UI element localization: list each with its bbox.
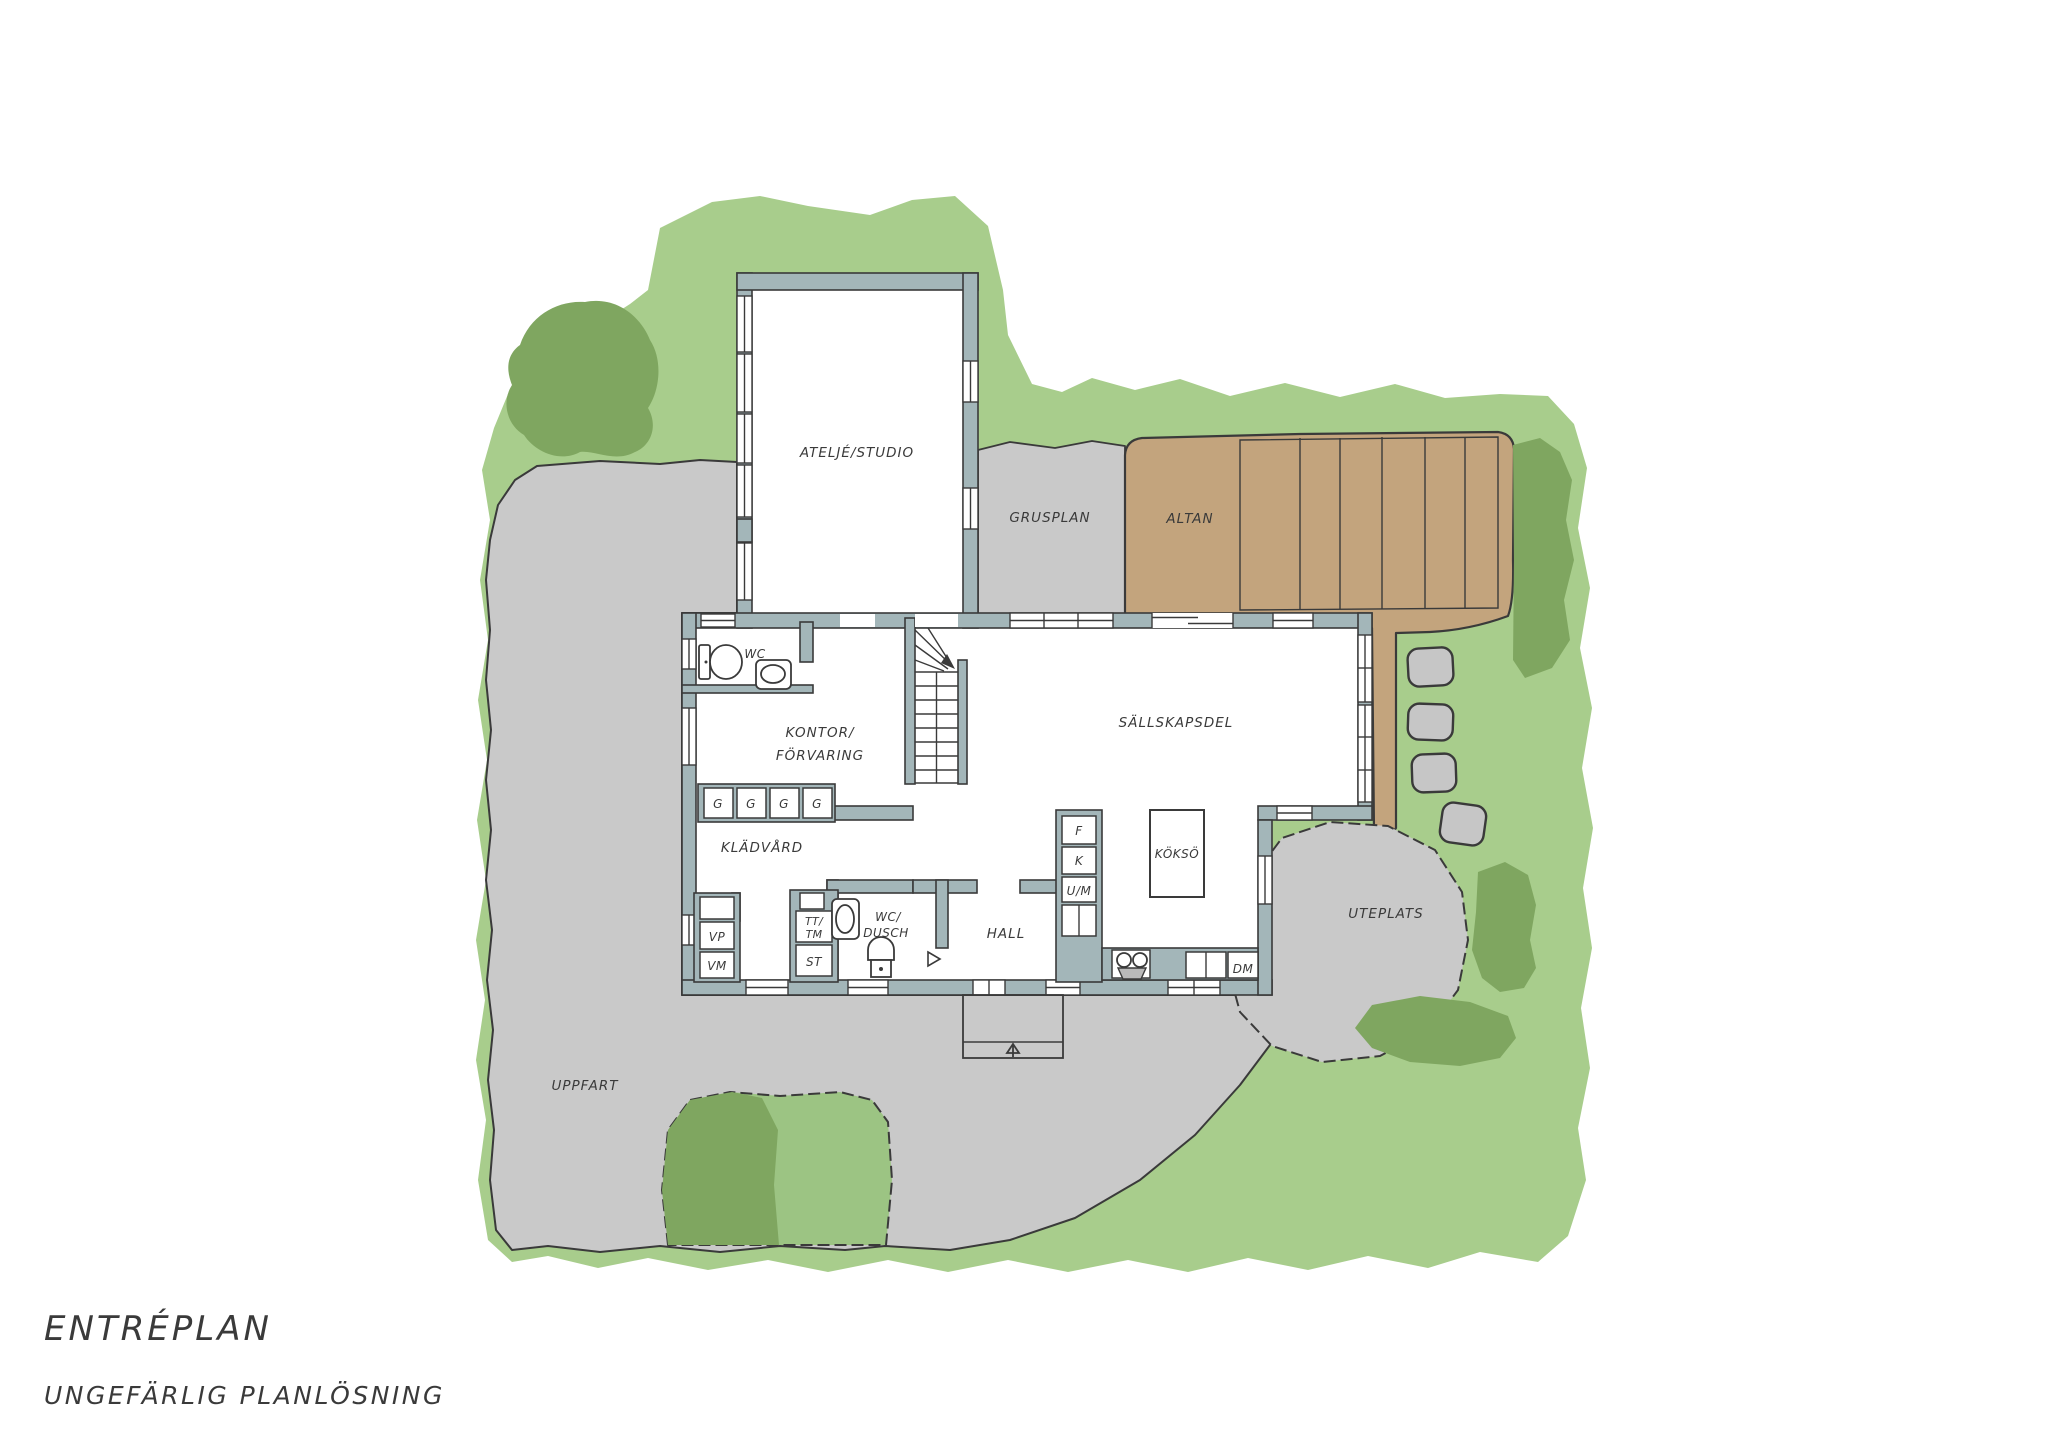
st-label: ST: [806, 955, 823, 969]
wc-label: WC: [744, 647, 765, 661]
bush-right-of-uteplats: [1472, 862, 1536, 992]
terrace-sliding-door: [1152, 613, 1233, 628]
stair-east-wall: [958, 660, 967, 784]
freezer-label: K: [1075, 854, 1084, 868]
tree-top-left: [506, 301, 658, 457]
wcdusch-east-wall: [936, 880, 948, 948]
altan-label: ALTAN: [1165, 511, 1213, 527]
sallskapsdel-south-wall: [1258, 806, 1372, 820]
kontor-label-1: KONTOR/: [785, 725, 854, 741]
page-title: ENTRÉPLAN: [44, 1308, 272, 1349]
stove-icon: [1112, 950, 1150, 979]
kitchen-counter: DM: [1102, 948, 1258, 980]
studio-east-wall: [963, 273, 978, 628]
stepping-stone: [1407, 647, 1454, 687]
studio-west-pier: [737, 519, 752, 542]
toilet-icon: [868, 937, 894, 977]
wc-south-wall: [682, 685, 813, 693]
bush-bottom-middle: [662, 1092, 892, 1245]
grusplan-label: GRUSPLAN: [1009, 510, 1090, 526]
sink-icon: [832, 899, 859, 939]
sallskapsdel-label: SÄLLSKAPSDEL: [1119, 713, 1234, 731]
page-subtitle: UNGEFÄRLIG PLANLÖSNING: [44, 1381, 445, 1410]
grusplan-area: GRUSPLAN: [978, 441, 1125, 628]
floorplan-page: UPPFART GRUSPLAN ALTAN UTEPLATS: [0, 0, 2048, 1448]
uteplats-label: UTEPLATS: [1348, 906, 1423, 922]
wardrobe-g-label: G: [812, 797, 822, 811]
wardrobe-g-label: G: [779, 797, 789, 811]
dishwasher: DM: [1228, 952, 1258, 978]
site-plan-svg: UPPFART GRUSPLAN ALTAN UTEPLATS: [0, 0, 2048, 1448]
tt-st-closet: TT/ TM ST: [790, 890, 838, 982]
stepping-stone: [1411, 753, 1456, 793]
bush-right-of-altan: [1513, 438, 1574, 678]
kitchen-east-wall: [1258, 820, 1272, 995]
hall-label: HALL: [987, 926, 1025, 942]
tt-tm-label-2: TM: [806, 928, 823, 941]
opening-kontor-studio: [840, 614, 875, 627]
title-block: ENTRÉPLAN UNGEFÄRLIG PLANLÖSNING: [44, 1308, 445, 1410]
wc-east-wall: [800, 622, 813, 662]
toilet-icon: [699, 645, 742, 679]
kontor-label-2: FÖRVARING: [776, 746, 864, 764]
kitchen-island: KÖKSÖ: [1150, 810, 1204, 897]
stair-west-wall: [905, 618, 915, 784]
tall-cabinet: F K U/M: [1056, 810, 1102, 982]
sink-icon: [756, 660, 791, 689]
wardrobe-g-label: G: [713, 797, 723, 811]
entry-door: [973, 980, 1005, 995]
uppfart-label: UPPFART: [552, 1078, 620, 1094]
dm-label: DM: [1233, 962, 1254, 976]
sink-cabinet: [1186, 952, 1226, 978]
koksoe-label: KÖKSÖ: [1155, 845, 1199, 861]
stepping-stone: [1407, 703, 1453, 741]
atelje-label: ATELJÉ/STUDIO: [799, 444, 914, 461]
vp-label: VP: [709, 930, 726, 944]
vm-label: VM: [707, 959, 727, 973]
window: [737, 296, 752, 600]
wardrobe-row: G G G G: [698, 784, 835, 822]
studio-north-wall: [737, 273, 978, 290]
opening-stair-top: [915, 614, 958, 627]
fridge-label: F: [1075, 824, 1083, 838]
stepping-stone: [1438, 801, 1487, 847]
vp-vm-closet: VP VM: [694, 893, 740, 982]
tt-tm-label-1: TT/: [805, 915, 824, 928]
hall-north-wall-east: [1020, 880, 1058, 893]
kontor-south-wall: [830, 806, 913, 820]
window: [1358, 635, 1372, 802]
wcdusch-label-2: DUSCH: [863, 926, 909, 940]
oven-micro-label: U/M: [1067, 884, 1092, 898]
wcdusch-label-1: WC/: [875, 910, 902, 924]
wardrobe-g-label: G: [746, 797, 756, 811]
wcdusch-north-wall: [827, 880, 913, 893]
kladvard-label: KLÄDVÅRD: [721, 838, 803, 856]
